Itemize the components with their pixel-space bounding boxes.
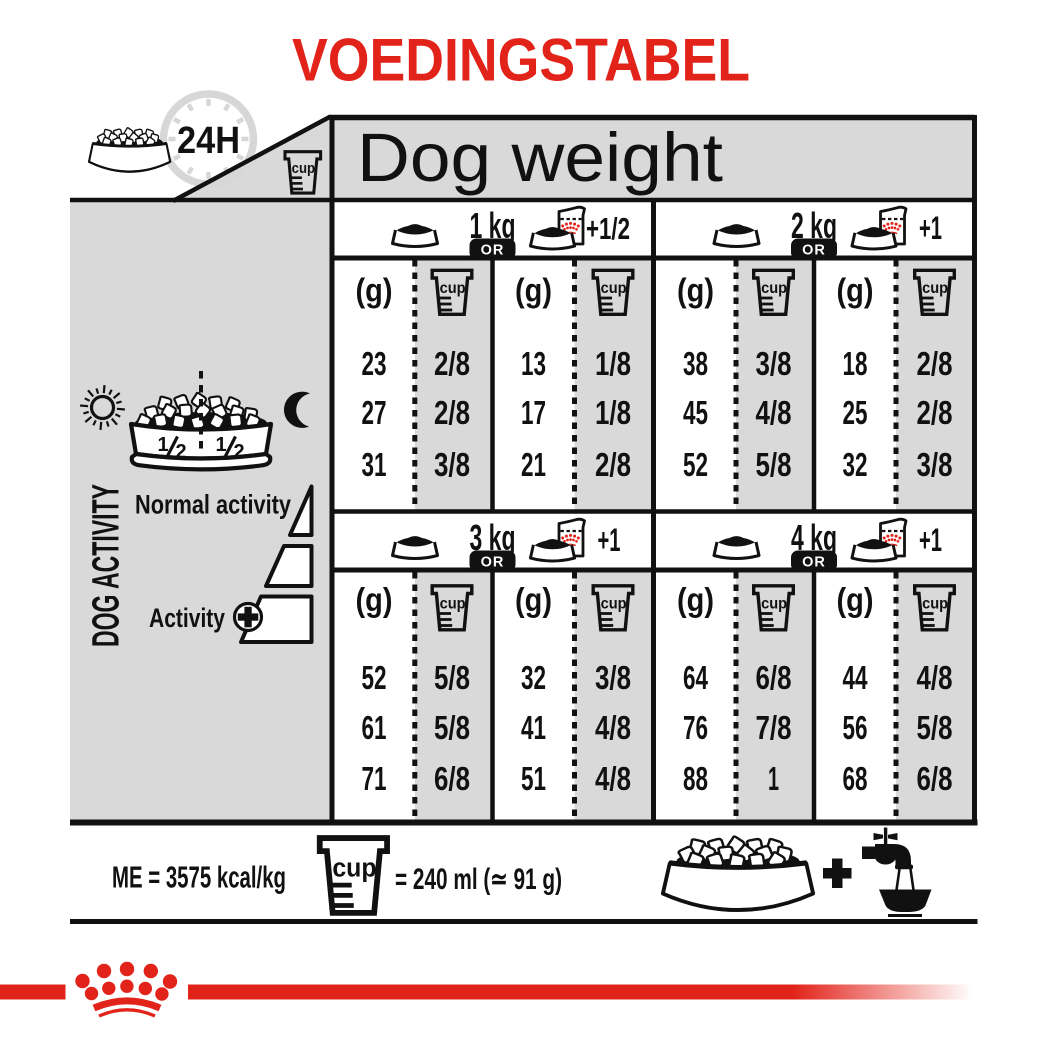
svg-text:52: 52 xyxy=(683,447,708,484)
svg-text:(g): (g) xyxy=(356,272,393,309)
svg-text:4/8: 4/8 xyxy=(917,660,953,697)
svg-text:VOEDINGSTABEL: VOEDINGSTABEL xyxy=(292,27,750,94)
svg-text:(g): (g) xyxy=(515,272,552,309)
svg-text:44: 44 xyxy=(843,660,868,697)
svg-text:4/8: 4/8 xyxy=(756,395,792,432)
svg-text:Activity: Activity xyxy=(149,603,225,633)
svg-text:1: 1 xyxy=(215,434,226,456)
svg-text:1: 1 xyxy=(157,434,168,456)
svg-text:32: 32 xyxy=(521,660,546,697)
svg-text:38: 38 xyxy=(683,346,708,383)
svg-text:(g): (g) xyxy=(837,272,874,309)
svg-text:3/8: 3/8 xyxy=(917,447,953,484)
svg-text:51: 51 xyxy=(521,761,546,798)
svg-text:Normal activity: Normal activity xyxy=(135,490,291,520)
svg-text:+1: +1 xyxy=(598,522,621,558)
svg-text:(g): (g) xyxy=(356,581,393,618)
svg-text:2/8: 2/8 xyxy=(917,346,953,383)
svg-text:2/8: 2/8 xyxy=(917,395,953,432)
svg-text:5/8: 5/8 xyxy=(917,710,953,747)
svg-text:(g): (g) xyxy=(515,581,552,618)
svg-text:32: 32 xyxy=(843,447,868,484)
svg-text:Dog weight: Dog weight xyxy=(357,119,723,196)
svg-text:5/8: 5/8 xyxy=(434,660,470,697)
svg-text:64: 64 xyxy=(683,660,708,697)
svg-text:18: 18 xyxy=(843,346,868,383)
svg-text:6/8: 6/8 xyxy=(917,761,953,798)
svg-text:68: 68 xyxy=(843,761,868,798)
svg-text:5/8: 5/8 xyxy=(756,447,792,484)
svg-text:56: 56 xyxy=(843,710,868,747)
svg-text:+1: +1 xyxy=(919,522,942,558)
svg-text:1/8: 1/8 xyxy=(595,395,631,432)
svg-text:88: 88 xyxy=(683,761,708,798)
svg-text:17: 17 xyxy=(521,395,546,432)
svg-text:6/8: 6/8 xyxy=(756,660,792,697)
svg-text:(g): (g) xyxy=(677,272,714,309)
svg-text:21: 21 xyxy=(521,447,546,484)
svg-text:23: 23 xyxy=(362,346,387,383)
svg-text:1: 1 xyxy=(768,761,779,798)
svg-text:6/8: 6/8 xyxy=(434,761,470,798)
svg-text:52: 52 xyxy=(362,660,387,697)
svg-text:4/8: 4/8 xyxy=(595,710,631,747)
svg-text:45: 45 xyxy=(683,395,708,432)
svg-text:1/8: 1/8 xyxy=(595,346,631,383)
svg-text:61: 61 xyxy=(362,710,387,747)
svg-text:OR: OR xyxy=(802,555,826,571)
svg-text:3/8: 3/8 xyxy=(434,447,470,484)
svg-text:3/8: 3/8 xyxy=(756,346,792,383)
svg-text:76: 76 xyxy=(683,710,708,747)
svg-text:7/8: 7/8 xyxy=(756,710,792,747)
svg-text:2/8: 2/8 xyxy=(595,447,631,484)
svg-text:(g): (g) xyxy=(677,581,714,618)
svg-text:31: 31 xyxy=(362,447,387,484)
svg-text:71: 71 xyxy=(362,761,387,798)
svg-text:4/8: 4/8 xyxy=(595,761,631,798)
svg-text:(g): (g) xyxy=(837,581,874,618)
svg-text:27: 27 xyxy=(362,395,387,432)
svg-text:DOG ACTIVITY: DOG ACTIVITY xyxy=(86,484,128,647)
svg-text:OR: OR xyxy=(802,243,826,259)
svg-text:+1: +1 xyxy=(919,210,942,246)
svg-text:5/8: 5/8 xyxy=(434,710,470,747)
svg-text:OR: OR xyxy=(481,243,505,259)
svg-text:41: 41 xyxy=(521,710,546,747)
svg-text:13: 13 xyxy=(521,346,546,383)
svg-text:+1/2: +1/2 xyxy=(586,211,630,246)
svg-text:= 240 ml (≃ 91 g): = 240 ml (≃ 91 g) xyxy=(395,863,562,896)
svg-text:2/8: 2/8 xyxy=(434,346,470,383)
svg-text:2/8: 2/8 xyxy=(434,395,470,432)
svg-text:25: 25 xyxy=(843,395,868,432)
svg-text:OR: OR xyxy=(481,555,505,571)
svg-text:3/8: 3/8 xyxy=(595,660,631,697)
svg-text:24H: 24H xyxy=(177,120,240,162)
svg-text:2: 2 xyxy=(233,441,244,463)
svg-text:ME = 3575 kcal/kg: ME = 3575 kcal/kg xyxy=(112,861,286,895)
svg-text:2: 2 xyxy=(175,441,186,463)
